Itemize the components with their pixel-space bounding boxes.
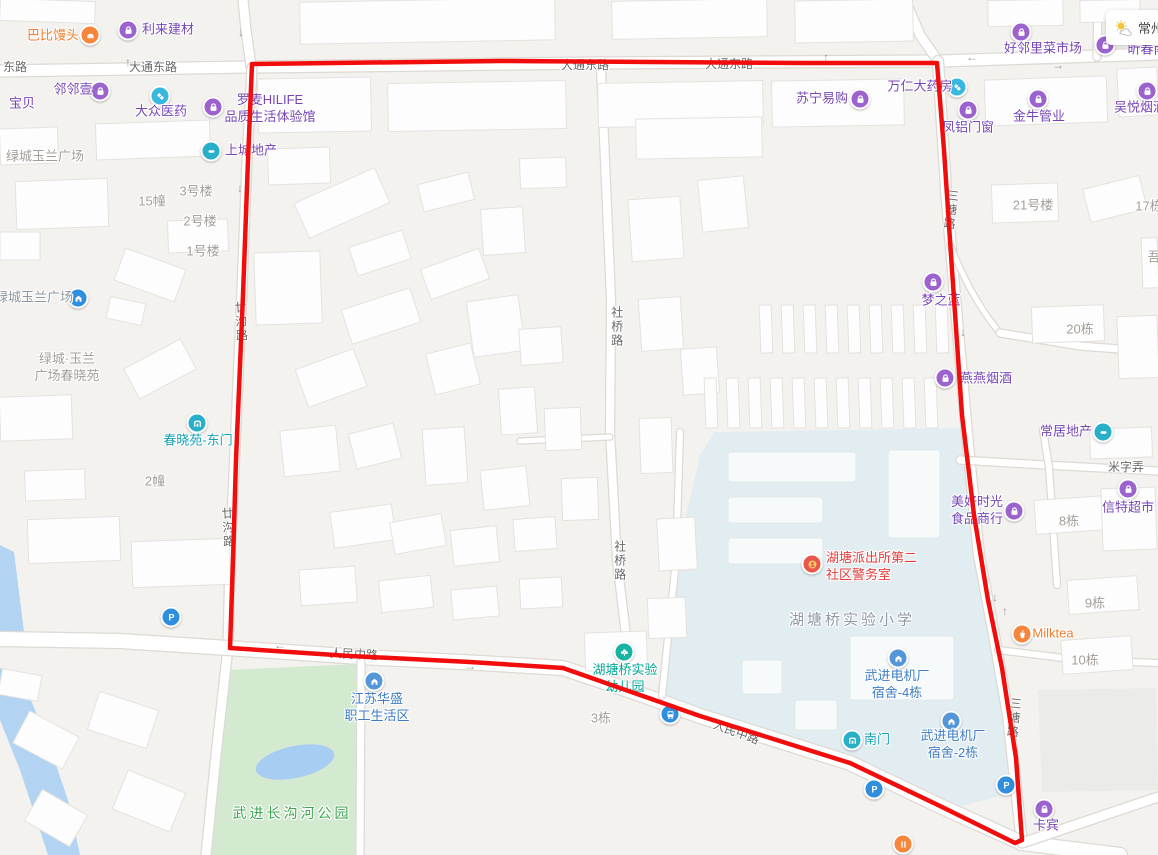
map-label: 信特超市 [1102,500,1154,517]
bag-icon[interactable] [1011,22,1032,43]
weather-widget[interactable]: 常州 [1106,10,1158,45]
map-label: 吾 [1147,250,1158,267]
bag-icon[interactable] [1137,81,1158,102]
map-label: 利来建材 [142,22,194,39]
map-label: 湖塘桥实验小学 [789,610,915,630]
map-label: Milktea [1032,626,1073,643]
map-label: 金牛管业 [1013,109,1065,126]
bag-icon[interactable] [90,81,111,102]
map-label: 湖塘桥实验幼儿园 [592,662,657,696]
bag-icon[interactable] [203,97,224,118]
map-label: 凤铝门窗 [942,120,994,137]
map-label: 燕燕烟酒 [960,371,1012,388]
map-label: 廿沟路 [218,507,236,550]
map-label: 21号楼 [1013,198,1053,215]
map-label: 武进电机厂宿舍-2栋 [920,728,985,762]
map-label: 南门 [864,732,890,749]
map-label: 3号楼 [179,184,212,201]
road-direction-arrow-icon: ↓ [943,175,949,189]
map-label: 17栋 [1135,199,1158,216]
map-label: 社桥路 [608,306,624,348]
road-direction-arrow-icon: → [464,659,476,673]
map-label: 大通东路 [129,60,177,76]
bag-icon[interactable] [1028,89,1049,110]
parking-icon[interactable] [864,779,885,800]
bar-icon[interactable] [201,141,222,162]
map-label: 万仁大药房 [887,79,952,96]
map-label: 宝贝 [9,96,35,113]
bag-icon[interactable] [1004,501,1025,522]
map-label: 武进长沟河公园 [233,804,352,822]
road-direction-arrow-icon: ↓ [1015,792,1021,806]
road-direction-arrow-icon: ↑ [1002,604,1008,618]
bag-icon[interactable] [118,20,139,41]
bag-icon[interactable] [1118,479,1139,500]
tree-icon[interactable] [614,642,635,663]
fork-icon[interactable] [893,834,914,855]
cup-icon[interactable] [1012,624,1033,645]
map-label: 2幢 [145,474,165,491]
map-label: 10栋 [1071,653,1098,670]
map-label: 梦之蓝 [921,293,960,310]
map-label: 上城地产 [225,143,277,160]
map-label: 常居地产 [1040,424,1092,441]
map-label: 大通东路 [705,57,753,73]
parking-icon[interactable] [161,607,182,628]
map-label: 8栋 [1059,514,1079,531]
map-label: 3栋 [591,711,611,728]
map-label: 卡宾 [1033,818,1059,835]
parking-icon[interactable] [996,775,1017,796]
map-label: 廿沟路 [231,301,249,344]
map-label: 1号楼 [186,244,219,261]
map-label: 吴悦烟酒 [1114,100,1158,117]
map-label: 大众医药 [135,104,187,121]
map-label: 江苏华盛职工生活区 [344,691,409,725]
map-label: 苏宁易购 [796,91,848,108]
weather-city: 常州 [1138,18,1158,37]
map-label: 9栋 [1085,596,1105,613]
road-direction-arrow-icon: ← [274,638,286,652]
road-direction-arrow-icon: ↓ [237,181,243,195]
map-label: 绿城·玉兰广场春晓苑 [34,351,99,385]
police-icon[interactable] [802,554,823,575]
gate-icon[interactable] [187,413,208,434]
map-label: 绿城玉兰广场 [0,290,73,307]
bar-icon[interactable] [1093,422,1114,443]
factory-icon[interactable] [364,671,385,692]
bun-icon[interactable] [80,25,101,46]
map-label: 春晓苑-东门 [163,433,232,450]
partly-sunny-icon [1113,20,1133,36]
map-label: 巴比馒头 [27,28,79,45]
road-direction-arrow-icon: ↑ [823,50,829,64]
map-label: 人民中路 [330,646,379,664]
map-label: 罗麦HILIFE品质生活体验馆 [224,92,315,126]
gate-icon[interactable] [842,730,863,751]
bag-icon[interactable] [923,272,944,293]
map-label: 东路 [3,60,27,76]
map-label: 社桥路 [611,540,627,582]
map-label: 2号楼 [183,214,216,231]
bus-icon[interactable] [660,704,681,725]
factory-icon[interactable] [888,648,909,669]
road-direction-arrow-icon: ↓ [238,25,244,39]
map-label: 15幢 [138,194,165,211]
road-direction-arrow-icon: ↓ [960,325,966,339]
map-label: 20栋 [1066,322,1093,339]
map-label: 米字弄 [1108,460,1144,476]
bag-icon[interactable] [850,89,871,110]
road-direction-arrow-icon: → [1052,58,1064,72]
map-label: 湖塘派出所第二社区警务室 [826,550,917,584]
map-label: 大通东路 [561,58,609,74]
map-label: 武进电机厂宿舍-4栋 [864,668,929,702]
road-direction-arrow-icon: ↓ [992,590,998,604]
map-canvas[interactable]: P 常州 巴比馒头利来建材东路大通东路大通东路大通东路邻邻壹宝贝大众医药罗麦HI… [0,0,1158,855]
bag-icon[interactable] [935,368,956,389]
map-label: 好邻里菜市场 [1004,41,1082,58]
map-label: 绿城玉兰广场 [6,149,84,166]
bag-icon[interactable] [958,100,979,121]
bag-icon[interactable] [1034,799,1055,820]
road-direction-arrow-icon: ← [966,50,978,64]
map-label: 邻邻壹 [53,82,92,99]
map-label: 美好时光食品商行 [951,494,1003,528]
